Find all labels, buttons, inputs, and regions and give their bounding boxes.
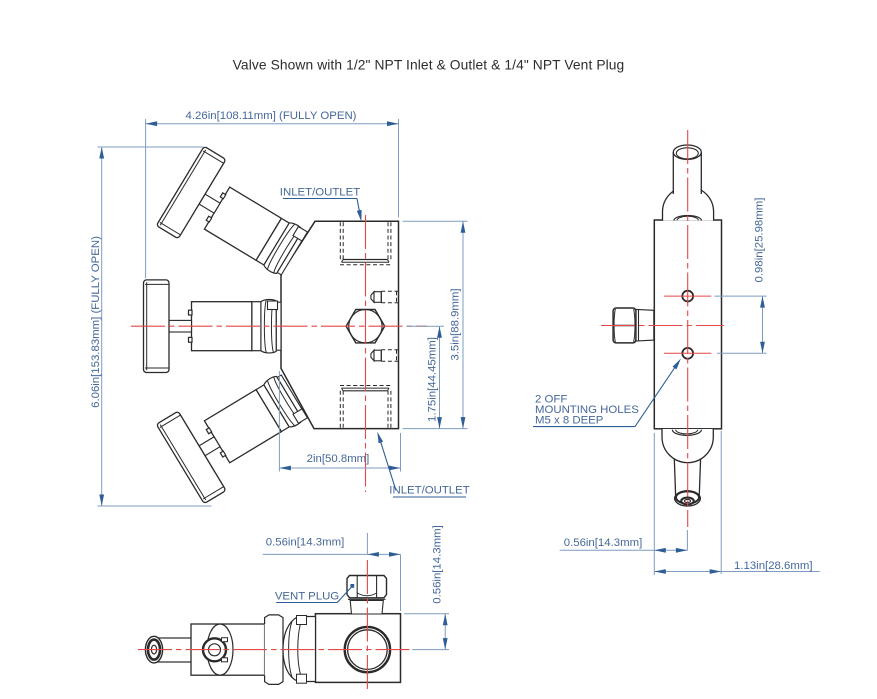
svg-text:Valve Shown with 1/2" NPT Inle: Valve Shown with 1/2" NPT Inlet & Outlet… xyxy=(233,58,625,73)
svg-text:0.56in[14.3mm]: 0.56in[14.3mm] xyxy=(432,525,444,604)
svg-text:4.26in[108.11mm] (FULLY OPEN): 4.26in[108.11mm] (FULLY OPEN) xyxy=(186,110,357,122)
svg-text:0.56in[14.3mm]: 0.56in[14.3mm] xyxy=(564,537,643,549)
svg-text:6.06in[153.83mm] (FULLY OPEN): 6.06in[153.83mm] (FULLY OPEN) xyxy=(90,236,102,408)
svg-text:1.75in[44.45mm]: 1.75in[44.45mm] xyxy=(426,337,438,422)
svg-text:0.98in[25.98mm]: 0.98in[25.98mm] xyxy=(753,198,765,283)
svg-text:3.5in[88.9mm]: 3.5in[88.9mm] xyxy=(449,288,461,360)
svg-text:INLET/OUTLET: INLET/OUTLET xyxy=(389,485,469,497)
svg-text:2in[50.8mm]: 2in[50.8mm] xyxy=(307,453,370,465)
svg-text:1.13in[28.6mm]: 1.13in[28.6mm] xyxy=(734,560,813,572)
svg-text:INLET/OUTLET: INLET/OUTLET xyxy=(280,187,360,199)
svg-text:M5 x 8 DEEP: M5 x 8 DEEP xyxy=(535,415,603,427)
svg-text:0.56in[14.3mm]: 0.56in[14.3mm] xyxy=(266,537,345,549)
svg-text:VENT PLUG: VENT PLUG xyxy=(275,591,339,603)
